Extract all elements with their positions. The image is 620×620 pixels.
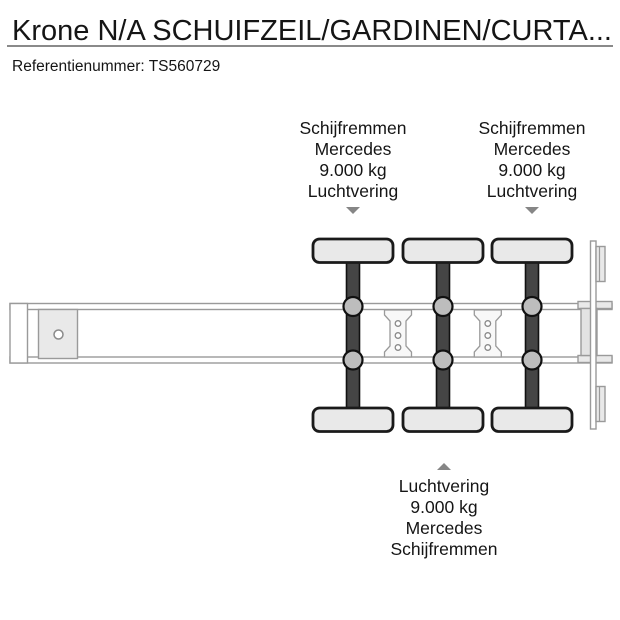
axle-1-wheel-bottom xyxy=(313,408,393,432)
axle-3-suspension-bottom xyxy=(523,351,542,370)
axle-2-brakes: Schijfremmen xyxy=(359,539,529,560)
axle-2-suspension-top xyxy=(434,297,453,316)
rear-bumper-bar xyxy=(591,241,597,429)
axle-2-suspension-type: Luchtvering xyxy=(359,476,529,497)
arrow-down-icon xyxy=(525,207,539,214)
axle-1-annotation: Schijfremmen Mercedes 9.000 kg Luchtveri… xyxy=(268,118,438,214)
axle-1-brand: Mercedes xyxy=(268,139,438,160)
axle-1-suspension-type: Luchtvering xyxy=(268,181,438,202)
axle-1-suspension-top xyxy=(344,297,363,316)
axle-3-brakes: Schijfremmen xyxy=(447,118,617,139)
vehicle-listing-schematic: Krone N/A SCHUIFZEIL/GARDINEN/CURTA... R… xyxy=(0,0,620,620)
axle-3-annotation: Schijfremmen Mercedes 9.000 kg Luchtveri… xyxy=(447,118,617,214)
axle-3 xyxy=(492,239,572,432)
axle-1-beam xyxy=(347,255,360,415)
arrow-up-icon xyxy=(437,463,451,470)
front-crossmember xyxy=(10,304,28,364)
rear-bracket-top xyxy=(596,247,605,282)
axle-1-load: 9.000 kg xyxy=(268,160,438,181)
axle-2-annotation: Luchtvering 9.000 kg Mercedes Schijfremm… xyxy=(359,463,529,560)
kingpin xyxy=(54,330,63,339)
axle-2-suspension-bottom xyxy=(434,351,453,370)
axle-3-wheel-top xyxy=(492,239,572,263)
chassis-crossmember-2 xyxy=(474,310,501,357)
axle-3-beam xyxy=(526,255,539,415)
axle-2-wheel-top xyxy=(403,239,483,263)
axle-2 xyxy=(403,239,483,432)
axle-1-wheel-top xyxy=(313,239,393,263)
axle-1-brakes: Schijfremmen xyxy=(268,118,438,139)
axle-3-suspension-top xyxy=(523,297,542,316)
rear-bracket-bottom xyxy=(596,387,605,422)
axle-1 xyxy=(313,239,393,432)
axle-2-wheel-bottom xyxy=(403,408,483,432)
arrow-down-icon xyxy=(346,207,360,214)
axle-3-load: 9.000 kg xyxy=(447,160,617,181)
axle-3-brand: Mercedes xyxy=(447,139,617,160)
axle-3-wheel-bottom xyxy=(492,408,572,432)
axle-2-beam xyxy=(437,255,450,415)
axle-1-suspension-bottom xyxy=(344,351,363,370)
chassis-crossmember-1 xyxy=(385,310,412,357)
axle-3-suspension-type: Luchtvering xyxy=(447,181,617,202)
axle-2-load: 9.000 kg xyxy=(359,497,529,518)
axle-2-brand: Mercedes xyxy=(359,518,529,539)
